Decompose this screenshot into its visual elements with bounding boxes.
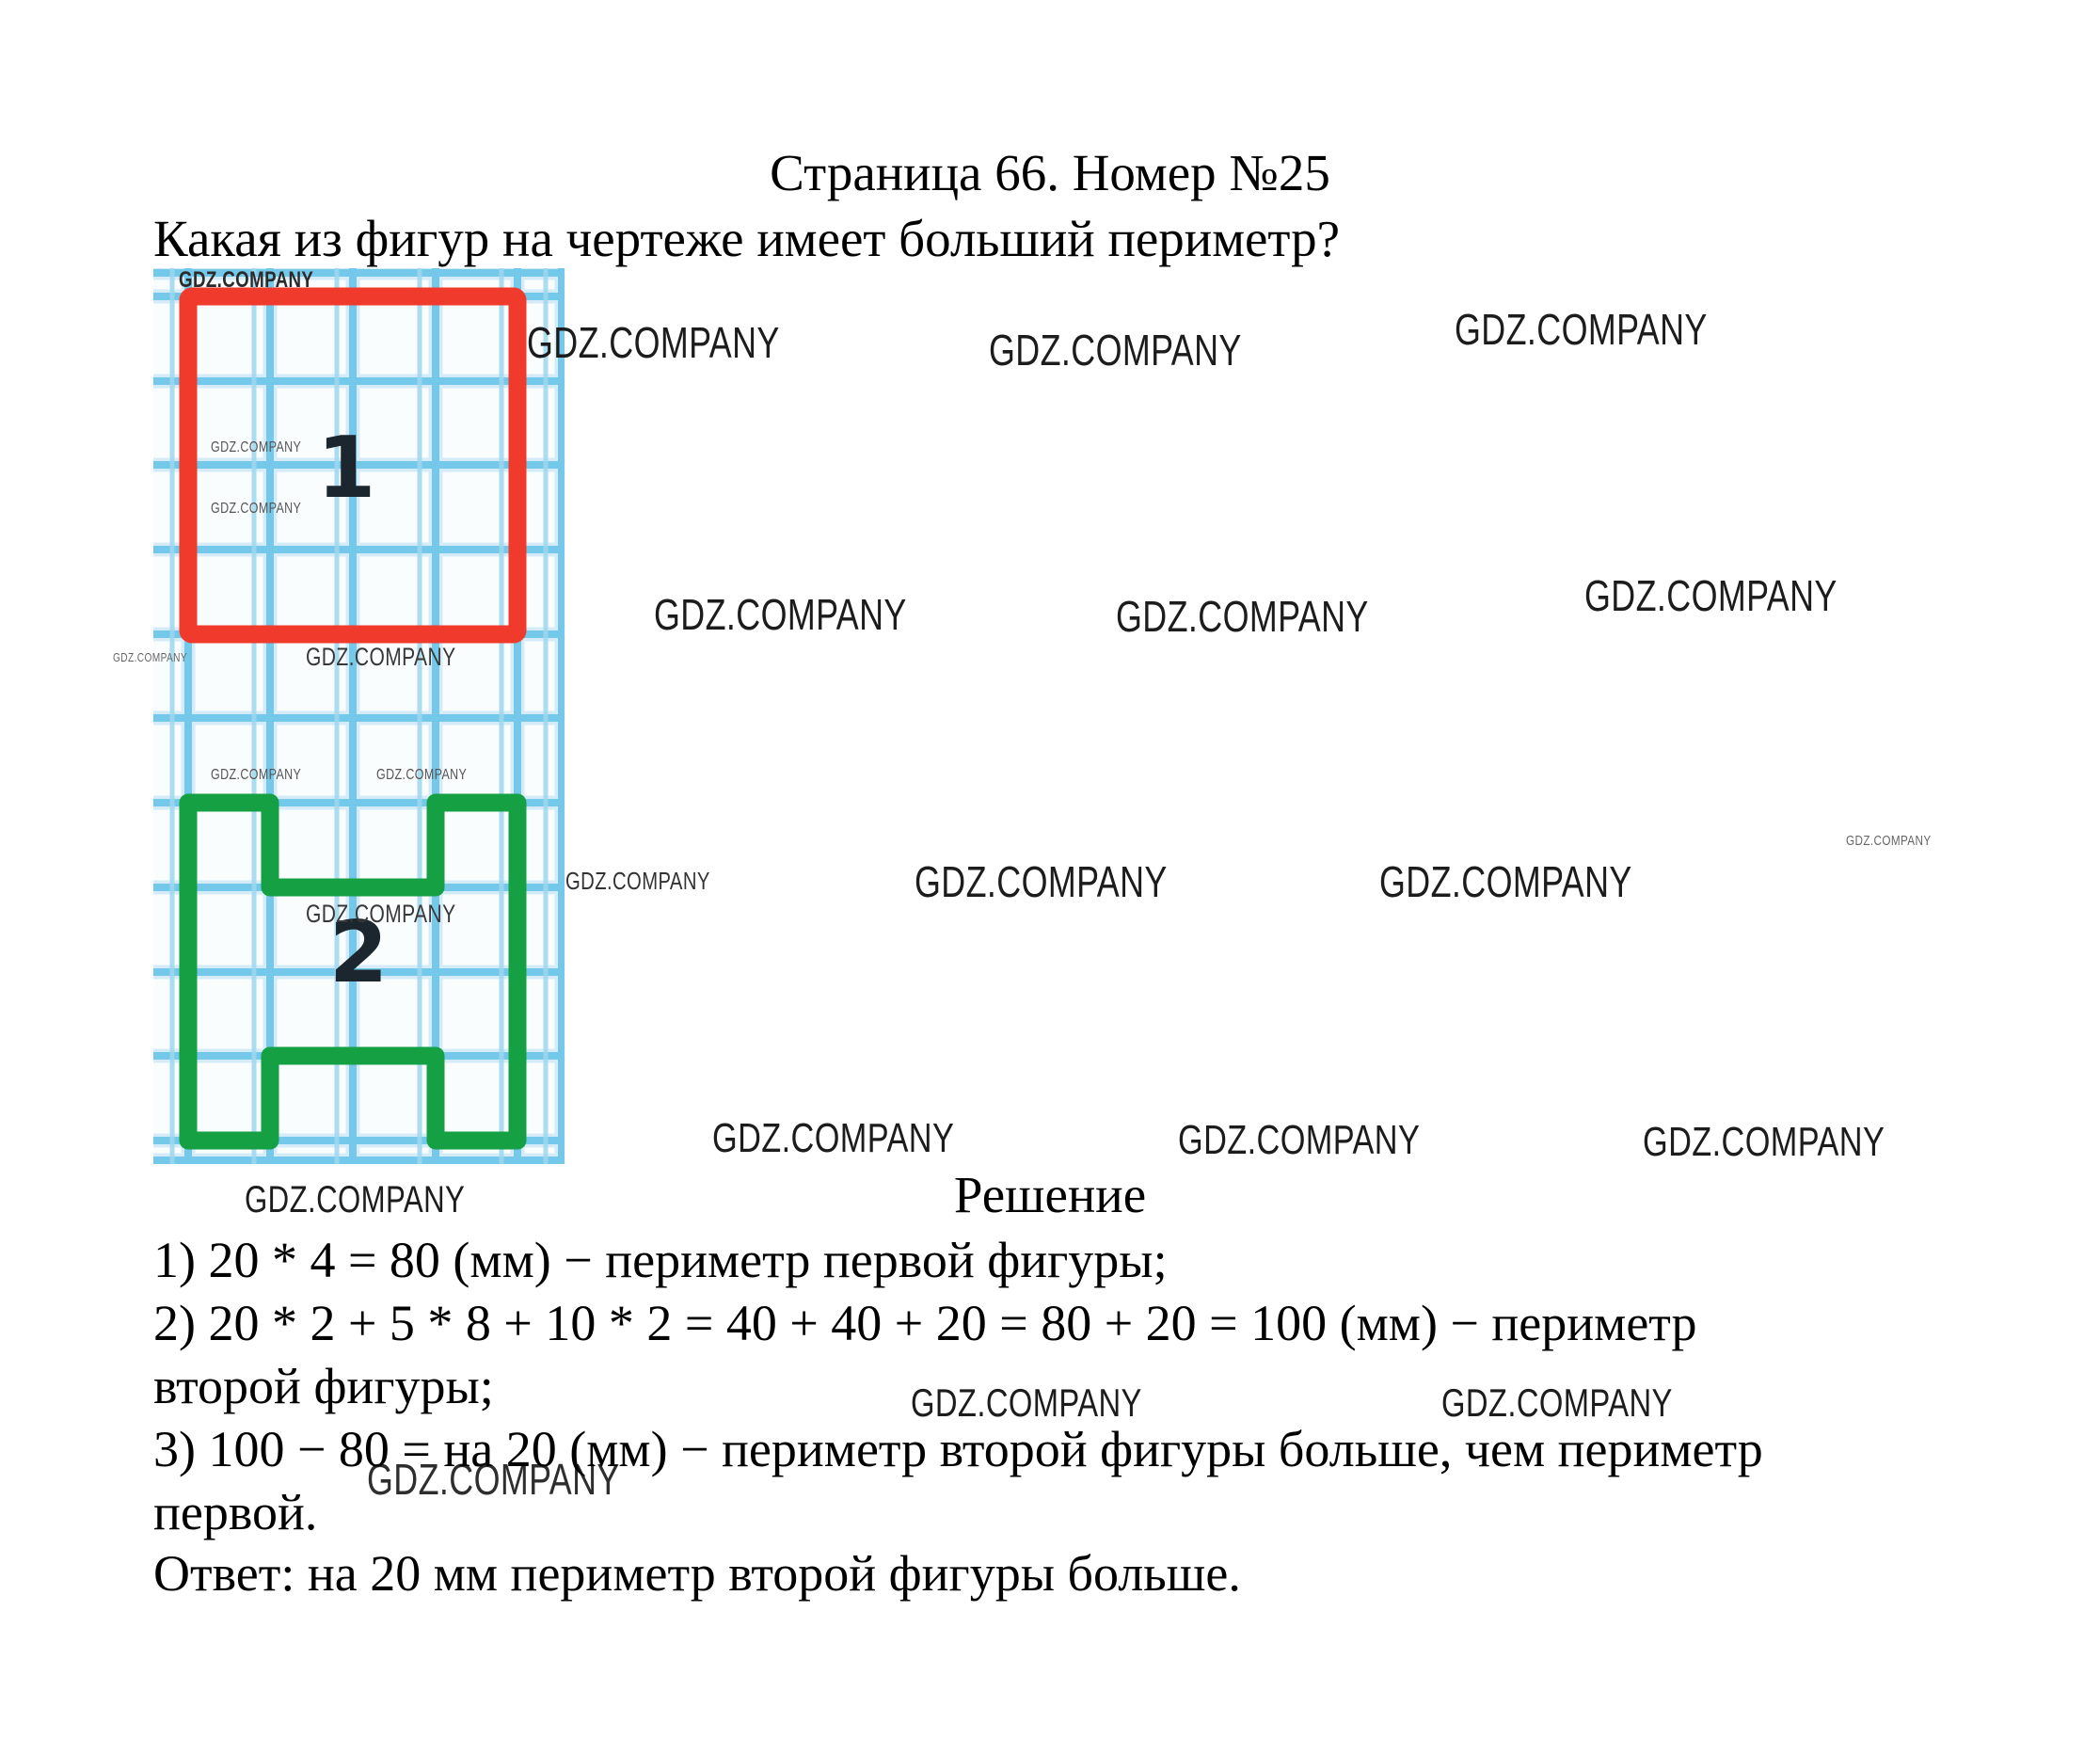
solution-page: Страница 66. Номер №25 Какая из фигур на… <box>0 0 2100 1739</box>
question-text: Какая из фигур на чертеже имеет больший … <box>153 209 1340 268</box>
watermark: GDZ.COMPANY <box>1846 834 1932 848</box>
watermark: GDZ.COMPANY <box>376 768 467 783</box>
grid-svg: 1 2 <box>153 268 565 1164</box>
watermark: GDZ.COMPANY <box>565 869 710 893</box>
solution-heading: Решение <box>0 1165 2100 1224</box>
watermark: GDZ.COMPANY <box>306 901 456 927</box>
answer-text: Ответ: на 20 мм периметр второй фигуры б… <box>153 1544 1241 1603</box>
watermark: GDZ.COMPANY <box>654 593 907 636</box>
watermark: GDZ.COMPANY <box>211 768 301 783</box>
watermark: GDZ.COMPANY <box>989 328 1242 372</box>
figure-1-label: 1 <box>317 419 376 518</box>
solution-step: первой. <box>153 1481 1763 1544</box>
watermark: GDZ.COMPANY <box>1643 1122 1885 1163</box>
solution-step: 2) 20 * 2 + 5 * 8 + 10 * 2 = 40 + 40 + 2… <box>153 1292 1763 1355</box>
watermark: GDZ.COMPANY <box>915 860 1168 903</box>
solution-step: второй фигуры; <box>153 1355 1763 1418</box>
solution-step: 3) 100 − 80 = на 20 (мм) − периметр втор… <box>153 1418 1763 1481</box>
watermark: GDZ.COMPANY <box>306 645 456 670</box>
watermark: GDZ.COMPANY <box>527 321 780 364</box>
watermark: GDZ.COMPANY <box>1455 308 1708 351</box>
watermark: GDZ.COMPANY <box>211 440 301 455</box>
solution-step: 1) 20 * 4 = 80 (мм) − периметр первой фи… <box>153 1229 1763 1292</box>
watermark: GDZ.COMPANY <box>211 502 301 517</box>
watermark: GDZ.COMPANY <box>1116 595 1369 638</box>
grid-figure: 1 2 <box>153 268 565 1164</box>
watermark: GDZ.COMPANY <box>1178 1120 1420 1161</box>
page-title: Страница 66. Номер №25 <box>0 143 2100 202</box>
watermark: GDZ.COMPANY <box>179 269 313 292</box>
solution-steps: 1) 20 * 4 = 80 (мм) − периметр первой фи… <box>153 1229 1763 1544</box>
watermark: GDZ.COMPANY <box>1584 574 1837 617</box>
watermark: GDZ.COMPANY <box>113 651 187 663</box>
watermark: GDZ.COMPANY <box>1379 860 1632 903</box>
watermark: GDZ.COMPANY <box>712 1118 954 1159</box>
